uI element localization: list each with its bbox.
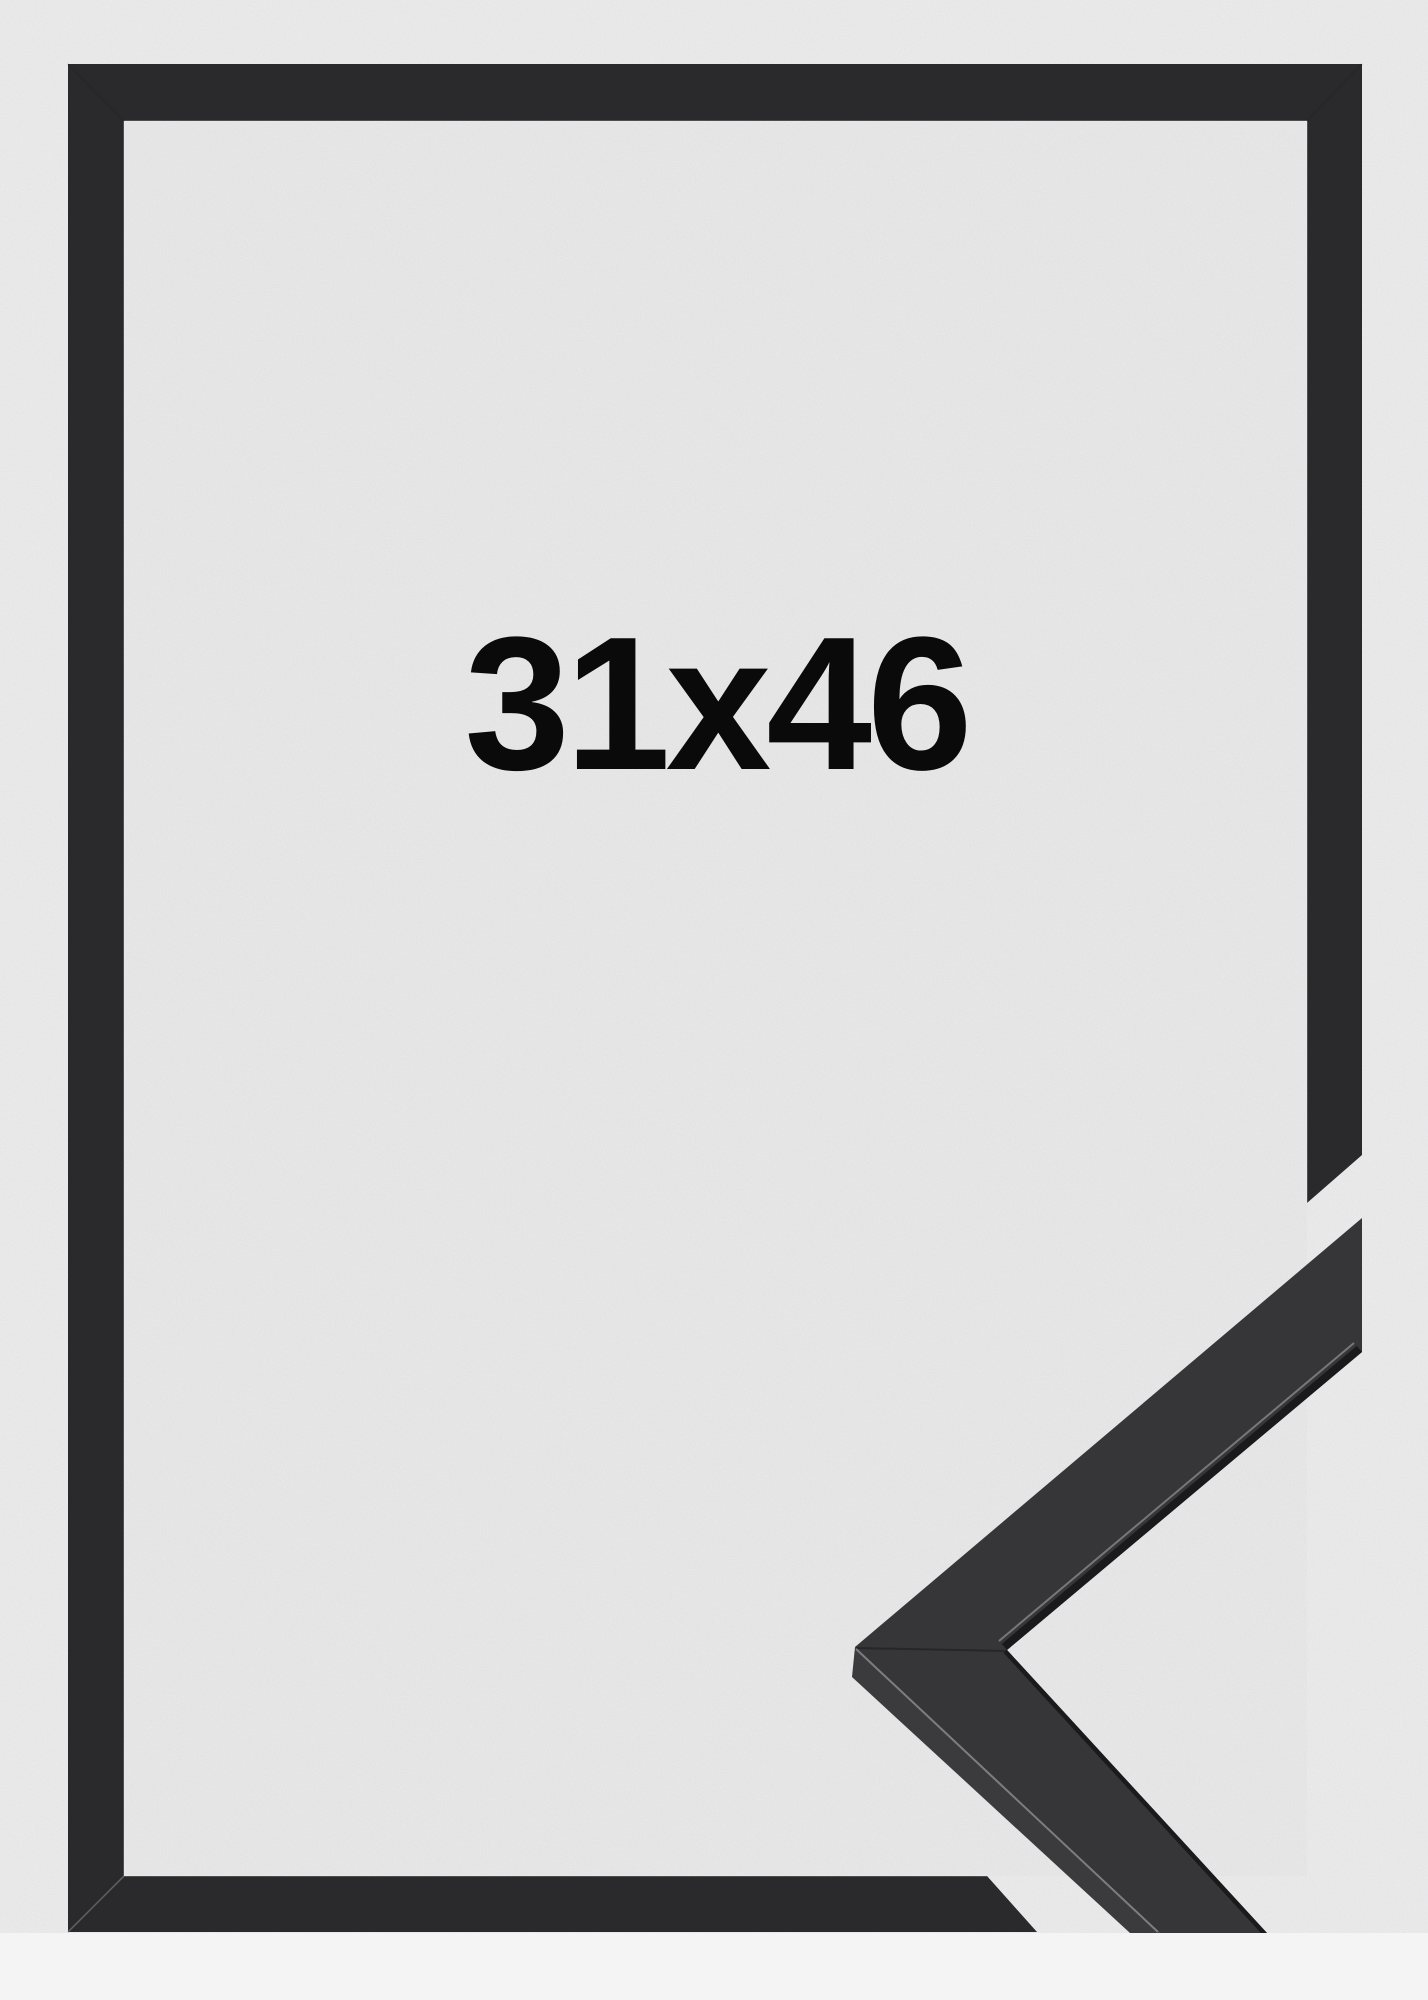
product-image: 31x46	[0, 0, 1428, 2000]
size-label: 31x46	[464, 609, 967, 799]
frame-artwork	[0, 0, 1428, 2000]
photo-grain-texture	[0, 0, 1428, 1933]
